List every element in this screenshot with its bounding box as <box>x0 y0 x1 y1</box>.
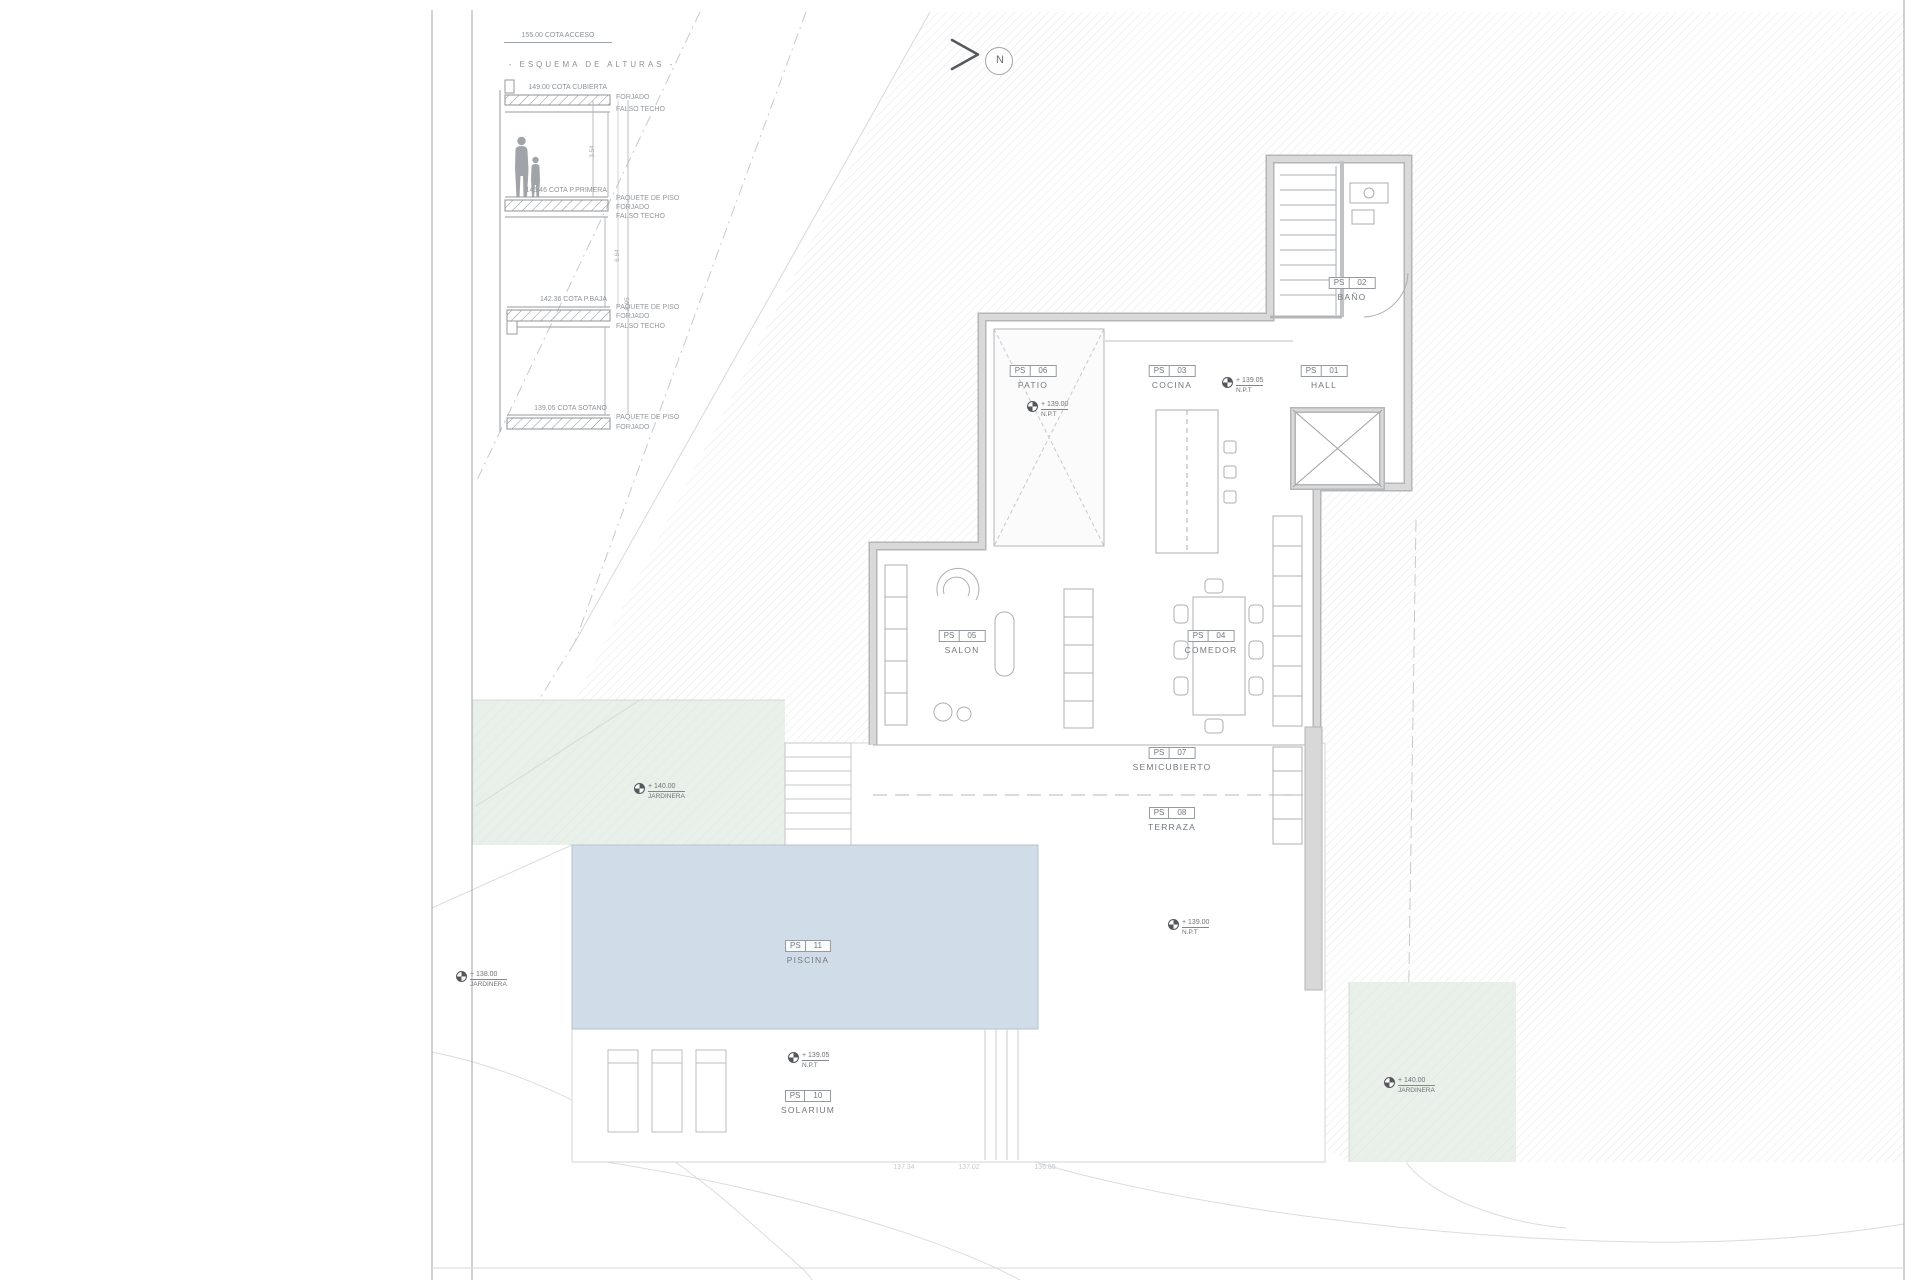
room-number: 10 <box>805 1091 830 1101</box>
level-marker-patio: + 139.00N.P.T <box>1027 401 1068 418</box>
dim-label: 9.95 <box>624 297 631 310</box>
level-marker-solarium: + 139.05N.P.T <box>788 1052 829 1069</box>
section-diagram <box>500 80 628 432</box>
room-number: 05 <box>959 631 984 641</box>
marker-sub: N.P.T <box>1041 411 1068 418</box>
room-name: BAÑO <box>1329 292 1376 302</box>
level-marker-jardinera-left: + 140.00JARDINERA <box>634 783 685 800</box>
room-code: PS <box>1150 748 1170 758</box>
room-name: PISCINA <box>785 955 831 965</box>
cota-baja: 142.36 COTA P.BAJA <box>495 296 607 304</box>
room-number: 08 <box>1169 808 1194 818</box>
benchmark-icon <box>1168 919 1179 930</box>
marker-sub: JARDINERA <box>470 981 507 988</box>
marker-value: + 139.00 <box>1041 401 1068 410</box>
marker-sub: JARDINERA <box>648 793 685 800</box>
layer-label: FALSO TECHO <box>616 323 665 331</box>
room-number: 06 <box>1030 366 1055 376</box>
room-name: SALON <box>939 645 986 655</box>
layer-label: PAQUETE DE PISO <box>616 414 679 422</box>
level-marker-jardinera-right: + 140.00JARDINERA <box>1384 1077 1435 1094</box>
room-label-bano: PS02 BAÑO <box>1329 272 1376 302</box>
level-marker-terraza: + 139.00N.P.T <box>1168 919 1209 936</box>
room-code: PS <box>1011 366 1031 376</box>
room-label-piscina: PS11 PISCINA <box>785 935 831 965</box>
layer-label: FORJADO <box>616 204 649 212</box>
marker-value: + 138.00 <box>470 971 507 980</box>
layer-label: FORJADO <box>616 424 649 432</box>
room-number: 03 <box>1169 366 1194 376</box>
room-number: 04 <box>1208 631 1233 641</box>
room-label-cocina: PS03 COCINA <box>1149 360 1196 390</box>
room-number: 11 <box>806 941 830 951</box>
marker-value: + 139.00 <box>1182 919 1209 928</box>
benchmark-icon <box>1384 1077 1395 1088</box>
planter-left <box>472 700 785 845</box>
level-marker-jardinera-far-left: + 138.00JARDINERA <box>456 971 507 988</box>
room-name: COCINA <box>1149 380 1196 390</box>
marker-value: + 139.05 <box>802 1052 829 1061</box>
room-name: COMEDOR <box>1185 645 1238 655</box>
room-name: SOLARIUM <box>781 1105 835 1115</box>
room-label-salon: PS05 SALON <box>939 625 986 655</box>
room-name: SEMICUBIERTO <box>1133 762 1212 772</box>
room-label-patio: PS06 PATIO <box>1010 360 1057 390</box>
benchmark-icon <box>1027 401 1038 412</box>
benchmark-icon <box>1222 377 1233 388</box>
room-label-semicubierto: PS07 SEMICUBIERTO <box>1133 742 1212 772</box>
room-code: PS <box>786 941 806 951</box>
contour-elevation: 137.02 <box>958 1164 979 1172</box>
planter-right <box>1349 982 1516 1162</box>
room-label-hall: PS01 HALL <box>1301 360 1348 390</box>
cota-cubierta: 149.00 COTA CUBIERTA <box>495 84 607 92</box>
elevator-shaft <box>1293 410 1382 487</box>
north-label: N <box>996 54 1004 66</box>
contour-elevation: 137.34 <box>893 1164 914 1172</box>
room-name: PATIO <box>1010 380 1057 390</box>
benchmark-icon <box>634 783 645 794</box>
room-code: PS <box>1150 808 1170 818</box>
layer-label: FALSO TECHO <box>616 213 665 221</box>
room-code: PS <box>786 1091 806 1101</box>
marker-sub: N.P.T <box>1236 387 1263 394</box>
contour-elevation: 136.85 <box>1034 1164 1055 1172</box>
marker-value: + 140.00 <box>648 783 685 792</box>
marker-value: + 139.05 <box>1236 377 1263 386</box>
sun-loungers <box>608 1050 726 1132</box>
dim-label: 3.54 <box>589 145 596 158</box>
room-label-terraza: PS08 TERRAZA <box>1148 802 1196 832</box>
room-number: 02 <box>1349 278 1374 288</box>
marker-sub: N.P.T <box>1182 929 1209 936</box>
access-cota-label: 155.00 COTA ACCESO <box>504 32 612 43</box>
room-label-solarium: PS10 SOLARIUM <box>781 1085 835 1115</box>
level-marker-cocina: + 139.05N.P.T <box>1222 377 1263 394</box>
layer-label: FORJADO <box>616 94 649 102</box>
cota-primera: 145.46 COTA P.PRIMERA <box>495 187 607 195</box>
dim-label: 6.64 <box>614 249 621 262</box>
benchmark-icon <box>788 1052 799 1063</box>
room-code: PS <box>940 631 960 641</box>
room-number: 01 <box>1321 366 1346 376</box>
drawing-sheet: { "sheet": { "access_label": "155.00 COT… <box>0 0 1920 1280</box>
scheme-title: - ESQUEMA DE ALTURAS - <box>467 61 717 70</box>
marker-sub: JARDINERA <box>1398 1087 1435 1094</box>
cota-sotano: 139.05 COTA SOTANO <box>495 405 607 413</box>
room-label-comedor: PS04 COMEDOR <box>1185 625 1238 655</box>
room-code: PS <box>1150 366 1170 376</box>
room-code: PS <box>1189 631 1209 641</box>
layer-label: FORJADO <box>616 313 649 321</box>
room-code: PS <box>1302 366 1322 376</box>
layer-label: FALSO TECHO <box>616 106 665 114</box>
room-code: PS <box>1330 278 1350 288</box>
benchmark-icon <box>456 971 467 982</box>
room-number: 07 <box>1169 748 1194 758</box>
room-name: HALL <box>1301 380 1348 390</box>
marker-sub: N.P.T <box>802 1062 829 1069</box>
layer-label: PAQUETE DE PISO <box>616 195 679 203</box>
room-name: TERRAZA <box>1148 822 1196 832</box>
marker-value: + 140.00 <box>1398 1077 1435 1086</box>
